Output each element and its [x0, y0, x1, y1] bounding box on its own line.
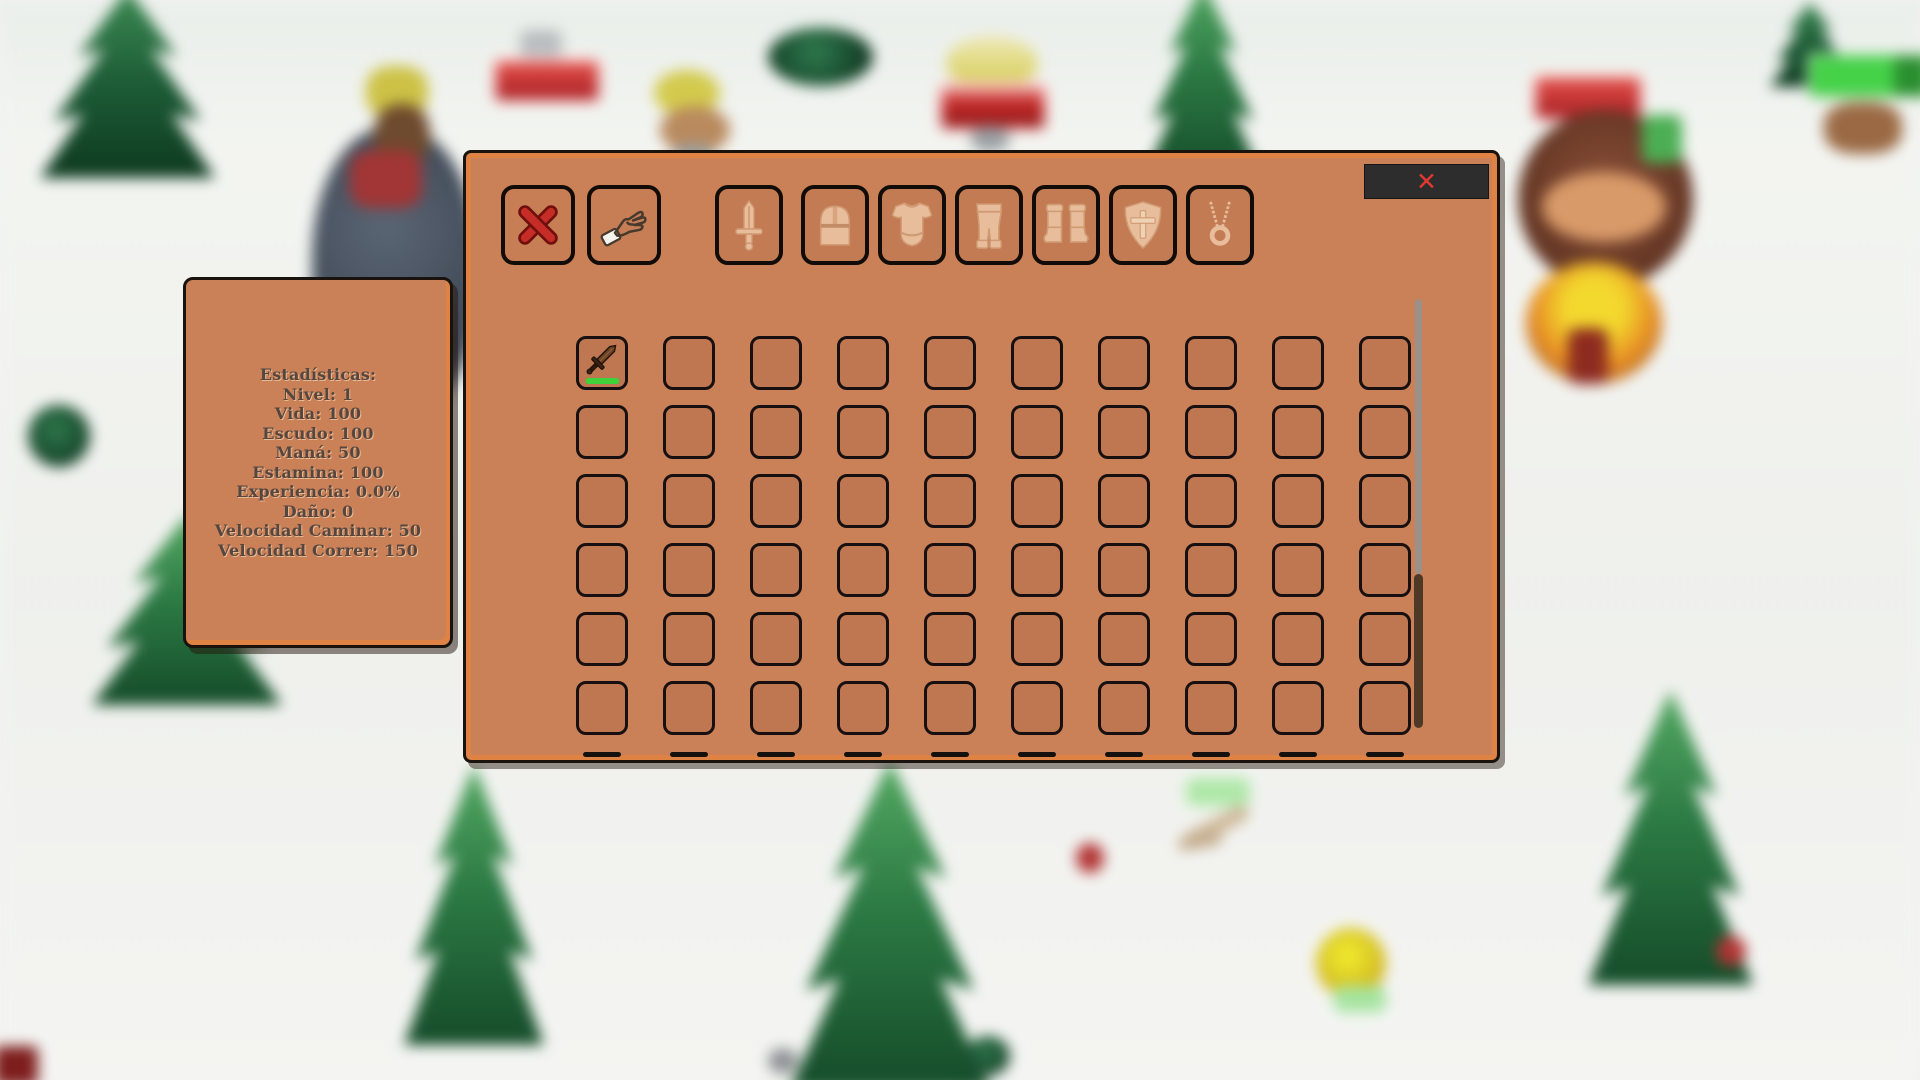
- item-red-square: [0, 1046, 38, 1080]
- inventory-slot-empty[interactable]: [1011, 612, 1063, 666]
- inventory-slot-empty[interactable]: [663, 681, 715, 735]
- inventory-slot-empty[interactable]: [1272, 336, 1324, 390]
- npc-hair: [946, 36, 1038, 90]
- equipment-slot-amulet[interactable]: [1186, 185, 1254, 265]
- inventory-slot-empty[interactable]: [1098, 474, 1150, 528]
- equipment-slot-chestplate[interactable]: [878, 185, 946, 265]
- npc-feet: [970, 126, 1010, 152]
- boss-legs: [1568, 328, 1608, 384]
- item-red-dot: [1716, 936, 1746, 966]
- inventory-slot-empty[interactable]: [924, 336, 976, 390]
- sword-icon: [729, 197, 769, 253]
- bush: [768, 28, 873, 86]
- stat-line: Vida: 100: [186, 404, 450, 424]
- green-patch: [1642, 115, 1682, 163]
- chestplate-icon: [887, 200, 937, 250]
- inventory-slot-empty[interactable]: [837, 474, 889, 528]
- inventory-scrollbar-track[interactable]: [1415, 299, 1422, 574]
- inventory-slot-empty[interactable]: [1272, 612, 1324, 666]
- grass-patch: [1334, 986, 1386, 1012]
- amulet-icon: [1199, 198, 1241, 252]
- inventory-slot-empty[interactable]: [1272, 474, 1324, 528]
- stat-line: Escudo: 100: [186, 424, 450, 444]
- grass-patch: [1186, 778, 1250, 806]
- stat-line: Velocidad Caminar: 50: [186, 521, 450, 541]
- stats-title: Estadísticas:: [186, 365, 450, 385]
- inventory-scrollbar-thumb[interactable]: [1414, 574, 1423, 728]
- equipment-slot-boots[interactable]: [1032, 185, 1100, 265]
- close-icon: ✕: [1416, 169, 1437, 194]
- inventory-slot-empty[interactable]: [1011, 474, 1063, 528]
- inventory-slot-empty[interactable]: [576, 612, 628, 666]
- inventory-slot-empty[interactable]: [576, 543, 628, 597]
- boss-face: [1542, 172, 1666, 242]
- hand-icon: [597, 198, 651, 252]
- red-x-icon: [512, 197, 564, 253]
- inventory-slot-empty[interactable]: [924, 543, 976, 597]
- inventory-slot-empty[interactable]: [663, 336, 715, 390]
- health-bar: [496, 62, 598, 100]
- slot-peek-dash: [1279, 752, 1317, 757]
- inventory-slot-empty[interactable]: [1272, 543, 1324, 597]
- stat-line: Daño: 0: [186, 502, 450, 522]
- inventory-slot-empty[interactable]: [663, 474, 715, 528]
- inventory-slot-empty[interactable]: [1098, 405, 1150, 459]
- inventory-slot-empty[interactable]: [1185, 543, 1237, 597]
- equipment-slot-shield[interactable]: [1109, 185, 1177, 265]
- inventory-slot-empty[interactable]: [750, 474, 802, 528]
- inventory-slot-item-sword[interactable]: [576, 336, 628, 390]
- leggings-icon: [967, 199, 1011, 251]
- inventory-panel: ✕: [463, 150, 1500, 763]
- stat-line: Experiencia: 0.0%: [186, 482, 450, 502]
- slot-peek-dash: [1018, 752, 1056, 757]
- slot-peek-dash: [1366, 752, 1404, 757]
- stats-panel: Estadísticas: Nivel: 1Vida: 100Escudo: 1…: [183, 277, 453, 648]
- bush: [966, 1036, 1010, 1076]
- inventory-slot-empty[interactable]: [1359, 612, 1411, 666]
- inventory-slot-empty[interactable]: [663, 612, 715, 666]
- inventory-slot-empty[interactable]: [1185, 336, 1237, 390]
- inventory-slot-empty[interactable]: [576, 405, 628, 459]
- inventory-slot-empty[interactable]: [1359, 336, 1411, 390]
- bush: [28, 405, 90, 467]
- inventory-slot-empty[interactable]: [1098, 612, 1150, 666]
- slot-peek-dash: [583, 752, 621, 757]
- inventory-slot-empty[interactable]: [837, 681, 889, 735]
- item-red-dot: [1076, 843, 1104, 873]
- inventory-slot-empty[interactable]: [837, 405, 889, 459]
- inventory-slot-empty[interactable]: [750, 405, 802, 459]
- shield-icon: [1121, 199, 1165, 251]
- slot-peek-dash: [844, 752, 882, 757]
- npc-icon: [520, 30, 562, 60]
- item-sword-icon: [581, 339, 623, 383]
- durability-bar-fill: [586, 378, 619, 384]
- equipment-slot-leggings[interactable]: [955, 185, 1023, 265]
- stat-line: Maná: 50: [186, 443, 450, 463]
- inventory-slot-empty[interactable]: [1098, 543, 1150, 597]
- equipment-slot-weapon[interactable]: [715, 185, 783, 265]
- inventory-slot-empty[interactable]: [837, 543, 889, 597]
- inventory-slot-empty[interactable]: [1011, 405, 1063, 459]
- inventory-slot-empty[interactable]: [924, 612, 976, 666]
- inventory-slot-empty[interactable]: [663, 543, 715, 597]
- slot-peek-dash: [1105, 752, 1143, 757]
- npc-knight-emblem: [350, 150, 422, 208]
- stat-line: Estamina: 100: [186, 463, 450, 483]
- inventory-slot-empty[interactable]: [1359, 681, 1411, 735]
- inventory-slot-empty[interactable]: [1185, 612, 1237, 666]
- inventory-slot-empty[interactable]: [837, 336, 889, 390]
- equipment-slot-helmet[interactable]: [801, 185, 869, 265]
- slot-peek-dash: [670, 752, 708, 757]
- stat-line: Nivel: 1: [186, 385, 450, 405]
- drop-item-button[interactable]: [587, 185, 661, 265]
- inventory-slot-empty[interactable]: [663, 405, 715, 459]
- inventory-slot-empty[interactable]: [1272, 681, 1324, 735]
- slot-peek-dash: [757, 752, 795, 757]
- inventory-slot-empty[interactable]: [576, 681, 628, 735]
- close-button[interactable]: ✕: [1364, 164, 1489, 199]
- inventory-slot-empty[interactable]: [1011, 681, 1063, 735]
- inventory-slot-empty[interactable]: [1185, 681, 1237, 735]
- inventory-slot-empty[interactable]: [924, 405, 976, 459]
- inventory-slot-empty[interactable]: [1011, 543, 1063, 597]
- helmet-icon: [813, 200, 857, 250]
- boots-icon: [1041, 202, 1091, 248]
- inventory-slot-empty[interactable]: [1359, 405, 1411, 459]
- item-gray-dot: [768, 1048, 798, 1074]
- grid-next-row-peek: [576, 752, 1411, 757]
- inventory-slot-empty[interactable]: [750, 336, 802, 390]
- health-bar-green: [1810, 56, 1920, 96]
- destroy-item-button[interactable]: [501, 185, 575, 265]
- inventory-slot-empty[interactable]: [1359, 474, 1411, 528]
- slot-peek-dash: [931, 752, 969, 757]
- inventory-grid: [576, 336, 1411, 735]
- npc-brown-blob: [1824, 102, 1902, 154]
- health-bar: [942, 86, 1044, 128]
- inventory-slot-empty[interactable]: [924, 474, 976, 528]
- inventory-slot-empty[interactable]: [1359, 543, 1411, 597]
- inventory-slot-empty[interactable]: [750, 543, 802, 597]
- stat-line: Velocidad Correr: 150: [186, 541, 450, 561]
- inventory-slot-empty[interactable]: [750, 681, 802, 735]
- inventory-slot-empty[interactable]: [1011, 336, 1063, 390]
- inventory-slot-empty[interactable]: [1098, 681, 1150, 735]
- inventory-slot-empty[interactable]: [837, 612, 889, 666]
- slot-peek-dash: [1192, 752, 1230, 757]
- inventory-slot-empty[interactable]: [1185, 405, 1237, 459]
- inventory-slot-empty[interactable]: [576, 474, 628, 528]
- inventory-slot-empty[interactable]: [750, 612, 802, 666]
- inventory-slot-empty[interactable]: [1185, 474, 1237, 528]
- stats-lines: Nivel: 1Vida: 100Escudo: 100Maná: 50Esta…: [186, 385, 450, 561]
- inventory-slot-empty[interactable]: [924, 681, 976, 735]
- inventory-slot-empty[interactable]: [1272, 405, 1324, 459]
- durability-bar: [586, 378, 619, 384]
- inventory-slot-empty[interactable]: [1098, 336, 1150, 390]
